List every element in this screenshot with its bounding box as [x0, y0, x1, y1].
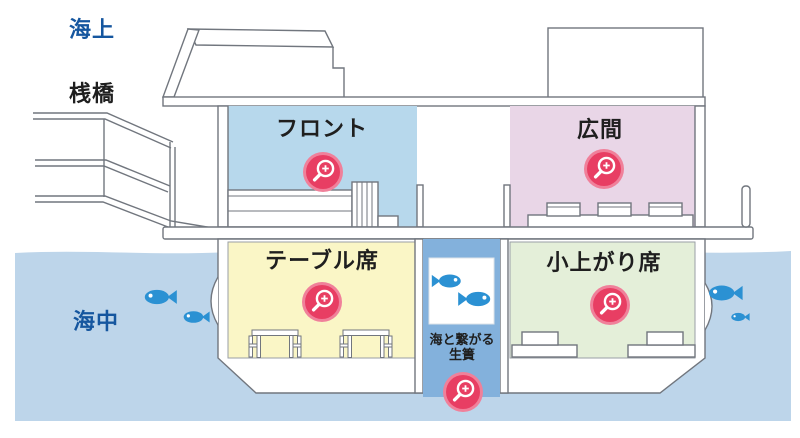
- pier-structure: [33, 113, 213, 228]
- main-deck: [163, 227, 753, 239]
- zoom-hotspot-tank[interactable]: [442, 371, 484, 413]
- magnifier-plus-icon: [301, 281, 343, 323]
- roof-eave-band: [163, 97, 705, 106]
- pier-label: 桟橋: [69, 76, 115, 108]
- tank-label: 海と繋がる 生簀: [429, 332, 494, 362]
- front-room-label: フロント: [276, 111, 368, 143]
- zoom-hotspot-front[interactable]: [302, 151, 344, 193]
- left-roof: [163, 29, 344, 97]
- tank-label-line1: 海と繋がる: [429, 332, 494, 347]
- tank-side-wall-left: [415, 239, 423, 393]
- magnifier-plus-icon: [302, 151, 344, 193]
- tank-window: [429, 258, 494, 324]
- magnifier-plus-icon: [442, 371, 484, 413]
- magnifier-plus-icon: [589, 284, 631, 326]
- corridor-wall-right: [504, 185, 510, 227]
- zoom-hotspot-hall[interactable]: [583, 148, 625, 190]
- tank-label-line2: 生簀: [429, 347, 494, 362]
- diagram-scene: [0, 0, 800, 438]
- magnifier-plus-icon: [583, 148, 625, 190]
- right-upper-wall: [695, 106, 705, 227]
- above-sea-label: 海上: [69, 12, 115, 44]
- zoom-hotspot-tatami-seats[interactable]: [589, 284, 631, 326]
- hall-platform-tables: [528, 203, 693, 228]
- floating-restaurant-cross-section: 海上 桟橋 海中 フロント 広間 テーブル席 小上がり席 海と繋がる 生簀: [0, 0, 800, 438]
- tatami-seats-label: 小上がり席: [546, 245, 661, 277]
- deck-railing-post: [742, 186, 750, 227]
- undersea-label: 海中: [73, 304, 119, 336]
- zoom-hotspot-table-seats[interactable]: [301, 281, 343, 323]
- table-seats-label: テーブル席: [265, 243, 379, 275]
- tank-side-wall-right: [500, 239, 508, 393]
- hall-room-label: 広間: [577, 112, 623, 144]
- left-upper-wall: [218, 106, 228, 227]
- corridor-wall-left: [417, 185, 423, 227]
- right-rooftop-box: [548, 28, 703, 98]
